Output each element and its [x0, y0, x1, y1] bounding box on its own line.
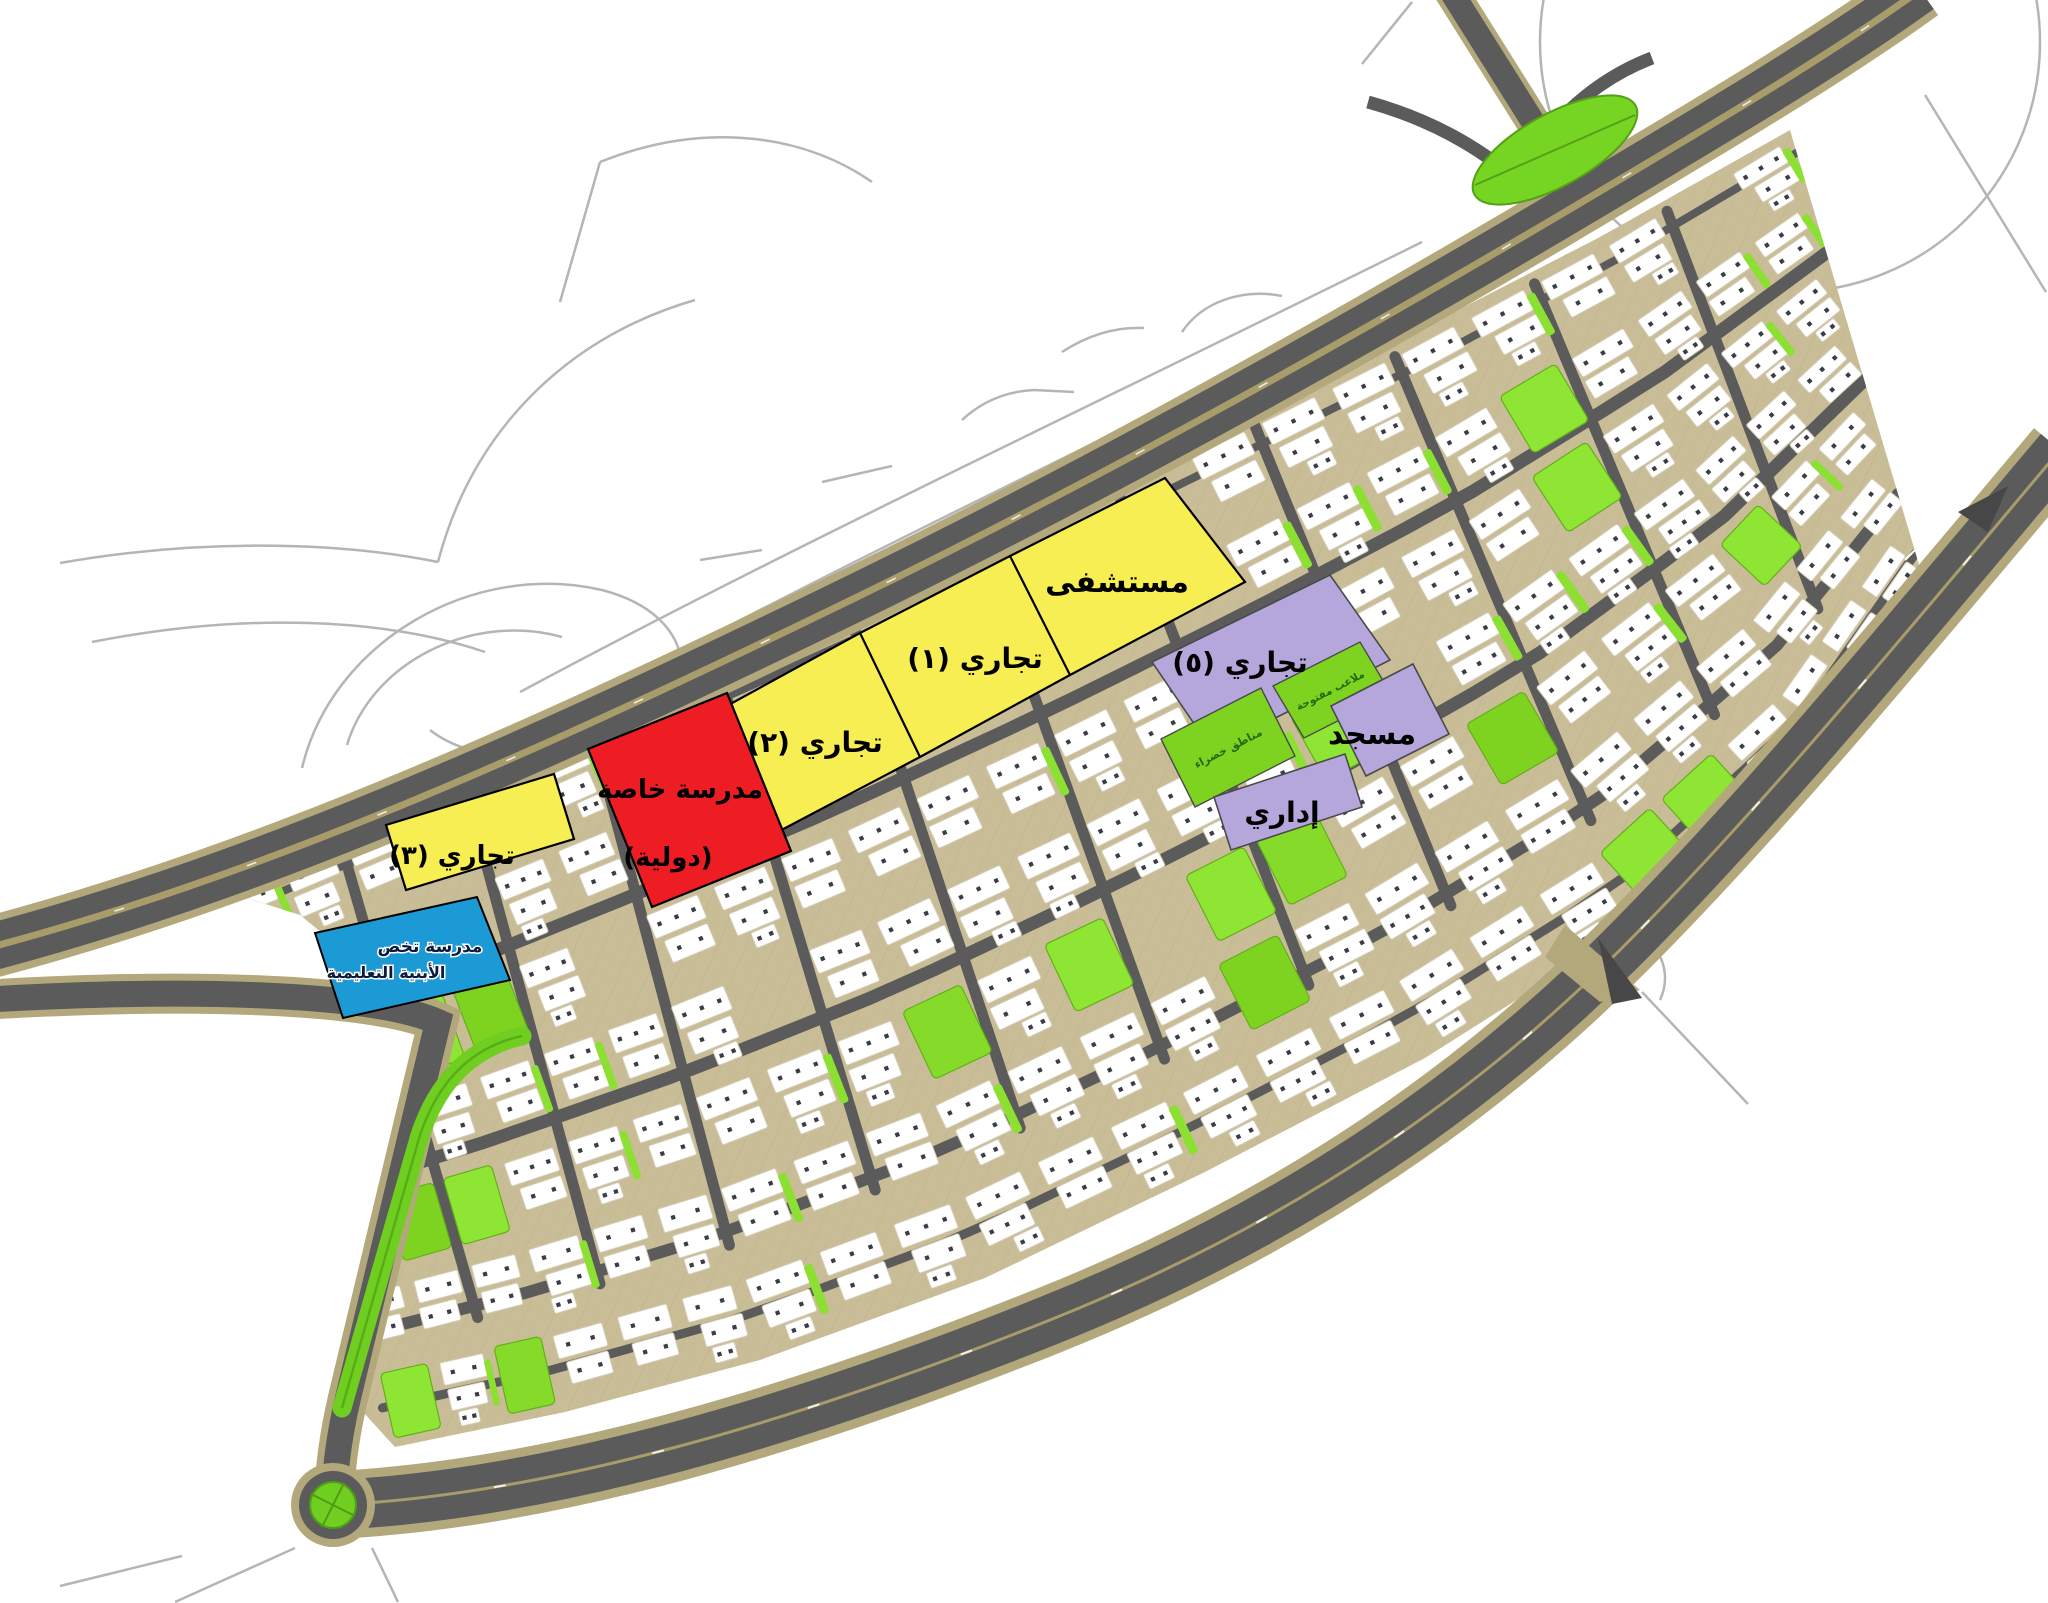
building-cluster [277, 1040, 340, 1102]
building [351, 1045, 397, 1079]
specialized-school-label-line1: مدرسة تخص [378, 937, 483, 957]
window-dot [315, 1141, 320, 1146]
commercial-1-label: تجاري (١) [907, 642, 1042, 675]
private-school-label-line1: مدرسة خاصة [597, 775, 763, 805]
window-dot [263, 918, 268, 923]
master-plan-svg: مستشفى تجاري (١) تجاري (٢) تجاري (٣) مدر… [0, 0, 2048, 1603]
mosque-label: مسجد [1328, 717, 1416, 752]
window-dot [341, 1222, 346, 1227]
commercial-2-label: تجاري (٢) [747, 726, 882, 759]
window-dot [279, 1024, 284, 1029]
window-dot [475, 1392, 480, 1397]
building-cluster [336, 1019, 403, 1097]
window-dot [312, 1053, 317, 1058]
building [316, 1149, 360, 1181]
window-dot [323, 1077, 328, 1082]
roundabout [291, 1463, 375, 1547]
building-cluster [303, 1122, 368, 1198]
window-dot [339, 1182, 344, 1187]
window-dot [371, 1031, 376, 1036]
window-dot [349, 1039, 354, 1044]
building [367, 1071, 393, 1092]
building [233, 907, 280, 943]
west-boundary-road [0, 994, 438, 1500]
admin-label: إداري [1244, 796, 1319, 830]
window-dot [456, 1396, 461, 1401]
window-dot [472, 1413, 477, 1418]
window-dot [450, 1369, 455, 1374]
building [303, 1122, 355, 1158]
window-dot [304, 1084, 309, 1089]
window-dot [289, 1020, 294, 1025]
hospital-label: مستشفى [1045, 565, 1189, 600]
window-dot [326, 1165, 331, 1170]
master-plan-canvas: مستشفى تجاري (١) تجاري (٢) تجاري (٣) مدر… [0, 0, 2048, 1603]
specialized-school-label-line2: الأبنية التعليمية [327, 963, 446, 982]
window-dot [345, 1159, 350, 1164]
building [277, 1041, 330, 1078]
commercial-3-label: تجاري (٣) [389, 841, 515, 871]
window-dot [363, 1215, 368, 1220]
window-dot [329, 1186, 334, 1191]
private-school-label-line2: (دولية) [623, 843, 712, 873]
window-dot [462, 1415, 467, 1420]
window-dot [374, 1122, 379, 1127]
commercial-5-label: تجاري (٥) [1172, 646, 1307, 679]
window-dot [286, 972, 291, 977]
building [294, 1066, 339, 1100]
window-dot [337, 1134, 342, 1139]
window-dot [244, 926, 249, 931]
window-dot [381, 1056, 386, 1061]
window-dot [472, 1365, 477, 1370]
window-dot [372, 1081, 377, 1086]
window-dot [289, 1061, 294, 1066]
window-dot [362, 1063, 367, 1068]
window-dot [355, 1245, 360, 1250]
window-dot [383, 1077, 388, 1082]
building [324, 1176, 349, 1196]
